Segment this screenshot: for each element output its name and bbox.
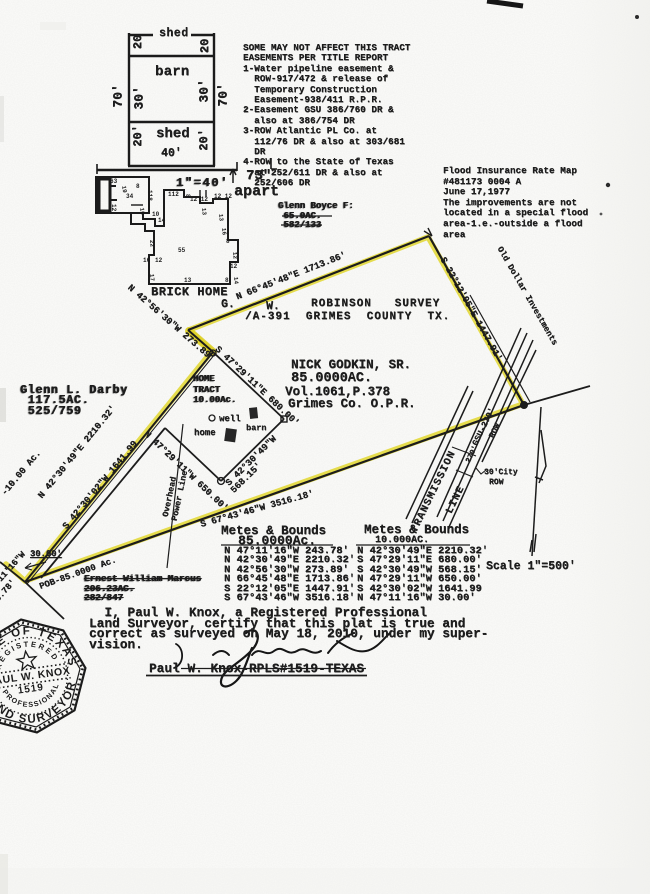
svg-text:1519: 1519 xyxy=(17,682,45,697)
